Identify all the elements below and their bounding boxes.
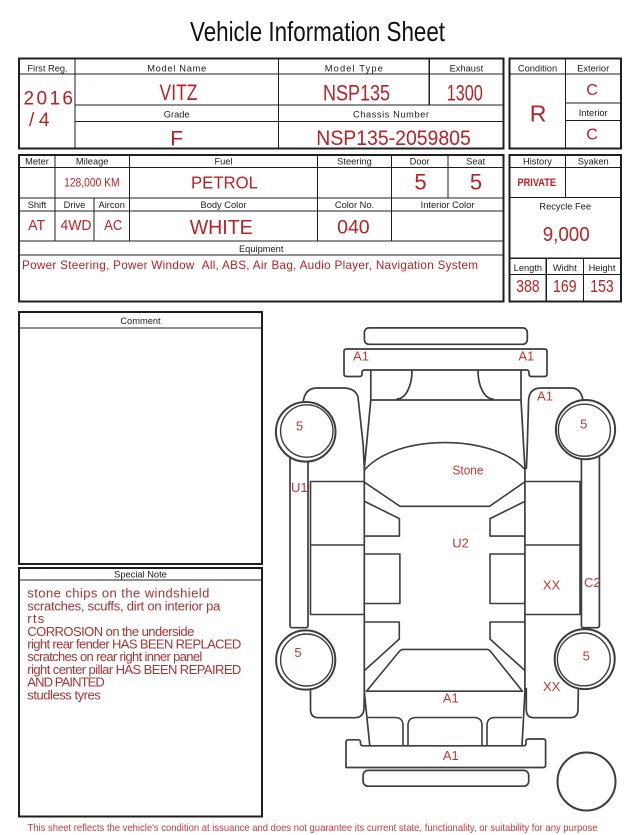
svg-text:WHITE: WHITE xyxy=(190,216,253,239)
svg-text:Shift: Shift xyxy=(28,200,47,210)
svg-text:1300: 1300 xyxy=(447,80,483,105)
svg-text:NSP135: NSP135 xyxy=(323,80,390,105)
svg-text:Model Name: Model Name xyxy=(147,64,206,74)
svg-text:Body Color: Body Color xyxy=(201,200,247,210)
svg-text:Fuel: Fuel xyxy=(214,157,232,167)
svg-text:Grade: Grade xyxy=(164,110,190,120)
svg-text:Comment: Comment xyxy=(120,316,161,326)
svg-text:Stone: Stone xyxy=(453,463,484,478)
svg-text:Door: Door xyxy=(410,157,430,167)
svg-text:169: 169 xyxy=(553,276,577,296)
svg-text:Color No.: Color No. xyxy=(335,200,374,210)
svg-text:C: C xyxy=(586,82,598,99)
svg-text:Widht: Widht xyxy=(553,263,577,273)
svg-text:388: 388 xyxy=(516,276,540,296)
svg-text:scratches, scuffs, dirt on int: scratches, scuffs, dirt on interior pa xyxy=(27,598,221,613)
svg-text:U1: U1 xyxy=(291,480,308,495)
svg-text:4WD: 4WD xyxy=(61,217,92,234)
svg-text:Interior: Interior xyxy=(579,108,608,118)
svg-text:9,000: 9,000 xyxy=(543,224,590,246)
svg-text:A1: A1 xyxy=(353,348,369,363)
svg-text:History: History xyxy=(523,157,552,167)
svg-text:Mileage: Mileage xyxy=(76,157,109,167)
svg-text:NSP135-2059805: NSP135-2059805 xyxy=(316,126,471,150)
svg-text:Recycle Fee: Recycle Fee xyxy=(539,202,591,212)
svg-text:Length: Length xyxy=(514,263,542,273)
svg-text:This sheet reflects the vehicl: This sheet reflects the vehicle's condit… xyxy=(28,823,598,834)
svg-text:5: 5 xyxy=(583,649,590,664)
svg-text:AC: AC xyxy=(104,217,122,234)
svg-text:R: R xyxy=(530,101,547,127)
svg-text:studless tyres: studless tyres xyxy=(27,687,101,702)
svg-text:/4: /4 xyxy=(29,110,50,131)
svg-text:Exterior: Exterior xyxy=(577,64,609,74)
svg-text:XX: XX xyxy=(543,578,561,593)
svg-text:AT: AT xyxy=(28,217,45,234)
svg-text:5: 5 xyxy=(470,169,482,194)
svg-text:Height: Height xyxy=(589,263,616,273)
svg-text:5: 5 xyxy=(580,417,587,432)
svg-text:Condition: Condition xyxy=(518,64,557,74)
svg-text:128,000 KM: 128,000 KM xyxy=(64,178,120,190)
svg-text:Chassis Number: Chassis Number xyxy=(353,110,429,120)
svg-text:5: 5 xyxy=(294,645,301,660)
svg-text:Syaken: Syaken xyxy=(578,157,609,167)
svg-text:C: C xyxy=(586,127,598,144)
svg-text:Aircon: Aircon xyxy=(99,200,125,210)
svg-text:Special Note: Special Note xyxy=(114,569,167,579)
svg-text:Exhaust: Exhaust xyxy=(450,64,484,74)
svg-text:First Reg.: First Reg. xyxy=(27,64,67,74)
svg-text:Steering: Steering xyxy=(337,157,372,167)
svg-text:C2: C2 xyxy=(584,575,601,590)
svg-text:A1: A1 xyxy=(443,748,459,763)
svg-text:VITZ: VITZ xyxy=(160,80,198,105)
svg-text:F: F xyxy=(170,128,183,151)
svg-text:Interior Color: Interior Color xyxy=(421,200,475,210)
svg-text:XX: XX xyxy=(543,679,561,694)
svg-text:PETROL: PETROL xyxy=(191,173,258,193)
svg-text:040: 040 xyxy=(337,217,370,239)
svg-text:U2: U2 xyxy=(452,535,469,550)
svg-text:153: 153 xyxy=(590,276,614,296)
svg-text:Meter: Meter xyxy=(25,157,49,167)
svg-text:Model Type: Model Type xyxy=(325,64,383,74)
svg-text:Seat: Seat xyxy=(466,157,486,167)
svg-text:Power Steering, Power Window: Power Steering, Power Window All, ABS, A… xyxy=(22,259,478,272)
svg-text:5: 5 xyxy=(414,169,426,194)
svg-text:Vehicle Information Sheet: Vehicle Information Sheet xyxy=(190,16,445,47)
svg-text:Equipment: Equipment xyxy=(239,244,284,254)
svg-text:A1: A1 xyxy=(518,349,534,364)
svg-text:A1: A1 xyxy=(537,389,553,404)
svg-text:Drive: Drive xyxy=(64,200,86,210)
svg-text:A1: A1 xyxy=(443,691,459,706)
svg-text:5: 5 xyxy=(296,418,303,433)
svg-text:PRIVATE: PRIVATE xyxy=(518,177,557,189)
